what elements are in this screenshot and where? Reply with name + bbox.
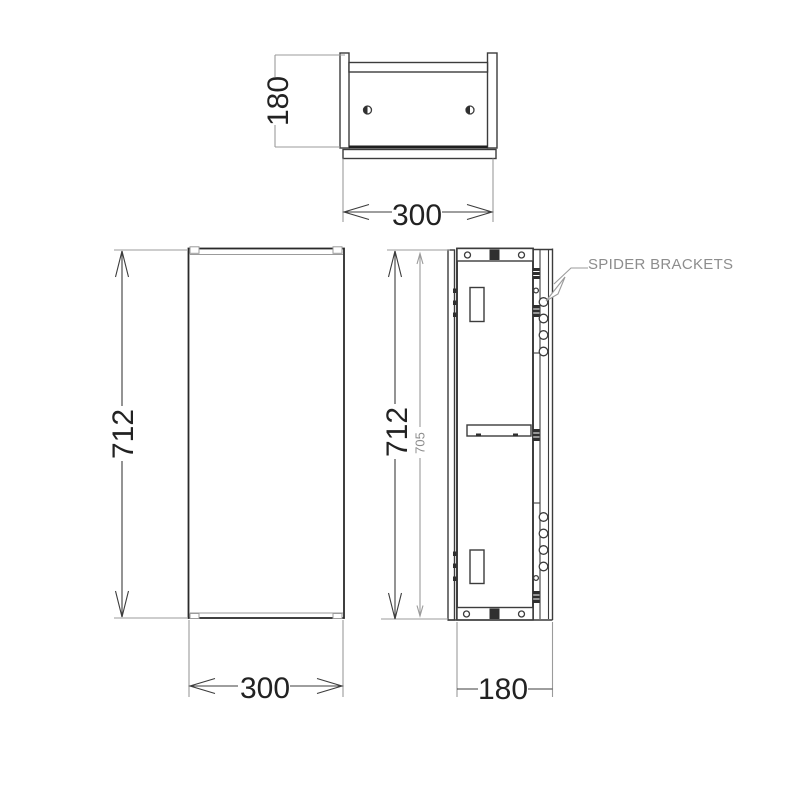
screw-hole-icon: [465, 252, 471, 258]
dim-label-top-width: 300: [392, 199, 442, 232]
dim-top-width: 300: [343, 159, 493, 233]
dim-label-front-height: 712: [107, 409, 140, 459]
plan-back-rail: [349, 63, 488, 73]
bottom-rail-block: [490, 609, 500, 620]
front-bottom-right-tab: [333, 614, 342, 619]
screw-hole-icon: [519, 611, 525, 617]
dim-side-depth: 180: [457, 622, 553, 706]
bracket-fixing-icon: [539, 298, 548, 307]
front-door-outline: [189, 249, 345, 619]
callout-label: SPIDER BRACKETS: [588, 256, 733, 273]
dim-label-side-depth: 180: [478, 673, 528, 706]
side-view: [448, 249, 553, 621]
screw-hole-icon: [519, 252, 525, 258]
dim-label-side-carcase-height: 705: [413, 432, 428, 454]
front-view: [189, 247, 345, 619]
plan-screw-hole-left: [364, 106, 372, 114]
hinge-slot: [470, 550, 484, 584]
dim-label-front-width: 300: [240, 672, 290, 705]
dim-front-width: 300: [189, 620, 343, 705]
spider-bracket-block: [533, 591, 539, 603]
plan-left-side-panel: [340, 53, 349, 148]
bracket-fixing-icon: [539, 529, 548, 538]
dim-side-carcase-height: 705: [413, 254, 428, 617]
front-bottom-left-tab: [190, 614, 199, 619]
hinge-mark: [453, 301, 456, 306]
dim-label-side-height: 712: [381, 407, 414, 457]
hinge-mark: [453, 289, 456, 294]
plan-door-strip: [343, 150, 496, 159]
shelf-support: [513, 434, 518, 437]
hinge-mark: [453, 313, 456, 318]
hinge-mark: [453, 552, 456, 557]
bracket-fixing-icon: [539, 331, 548, 340]
bracket-fixing-icon: [539, 513, 548, 522]
hinge-mark: [453, 577, 456, 582]
spider-bracket-block: [533, 305, 539, 317]
hinge-slot: [470, 288, 484, 322]
spider-bracket-block: [533, 429, 539, 441]
bracket-fixing-icon: [539, 347, 548, 356]
leader-line: [554, 268, 588, 284]
technical-drawing-page: 180 300 712 300: [0, 0, 800, 800]
plan-right-side-panel: [488, 53, 498, 148]
screw-hole-icon: [464, 611, 470, 617]
bracket-fixing-icon: [539, 314, 548, 323]
top-rail-block: [490, 250, 500, 261]
spider-brackets-callout: SPIDER BRACKETS: [546, 256, 733, 301]
channel-hole-icon: [534, 288, 539, 293]
front-top-right-tab: [333, 247, 342, 254]
dim-label-top-depth: 180: [262, 76, 295, 126]
plan-screw-hole-right: [466, 106, 474, 114]
channel-hole-icon: [534, 576, 539, 581]
front-top-left-tab: [190, 247, 199, 254]
bracket-fixing-icon: [539, 546, 548, 555]
dim-top-depth: 180: [262, 55, 345, 147]
cabinet-drawing-svg: 180 300 712 300: [0, 0, 800, 800]
hinge-mark: [453, 564, 456, 569]
spider-bracket-block: [533, 268, 539, 279]
bracket-fixing-icon: [539, 562, 548, 571]
shelf-support: [476, 434, 481, 437]
dim-front-height: 712: [107, 250, 187, 618]
top-view: [340, 53, 497, 159]
